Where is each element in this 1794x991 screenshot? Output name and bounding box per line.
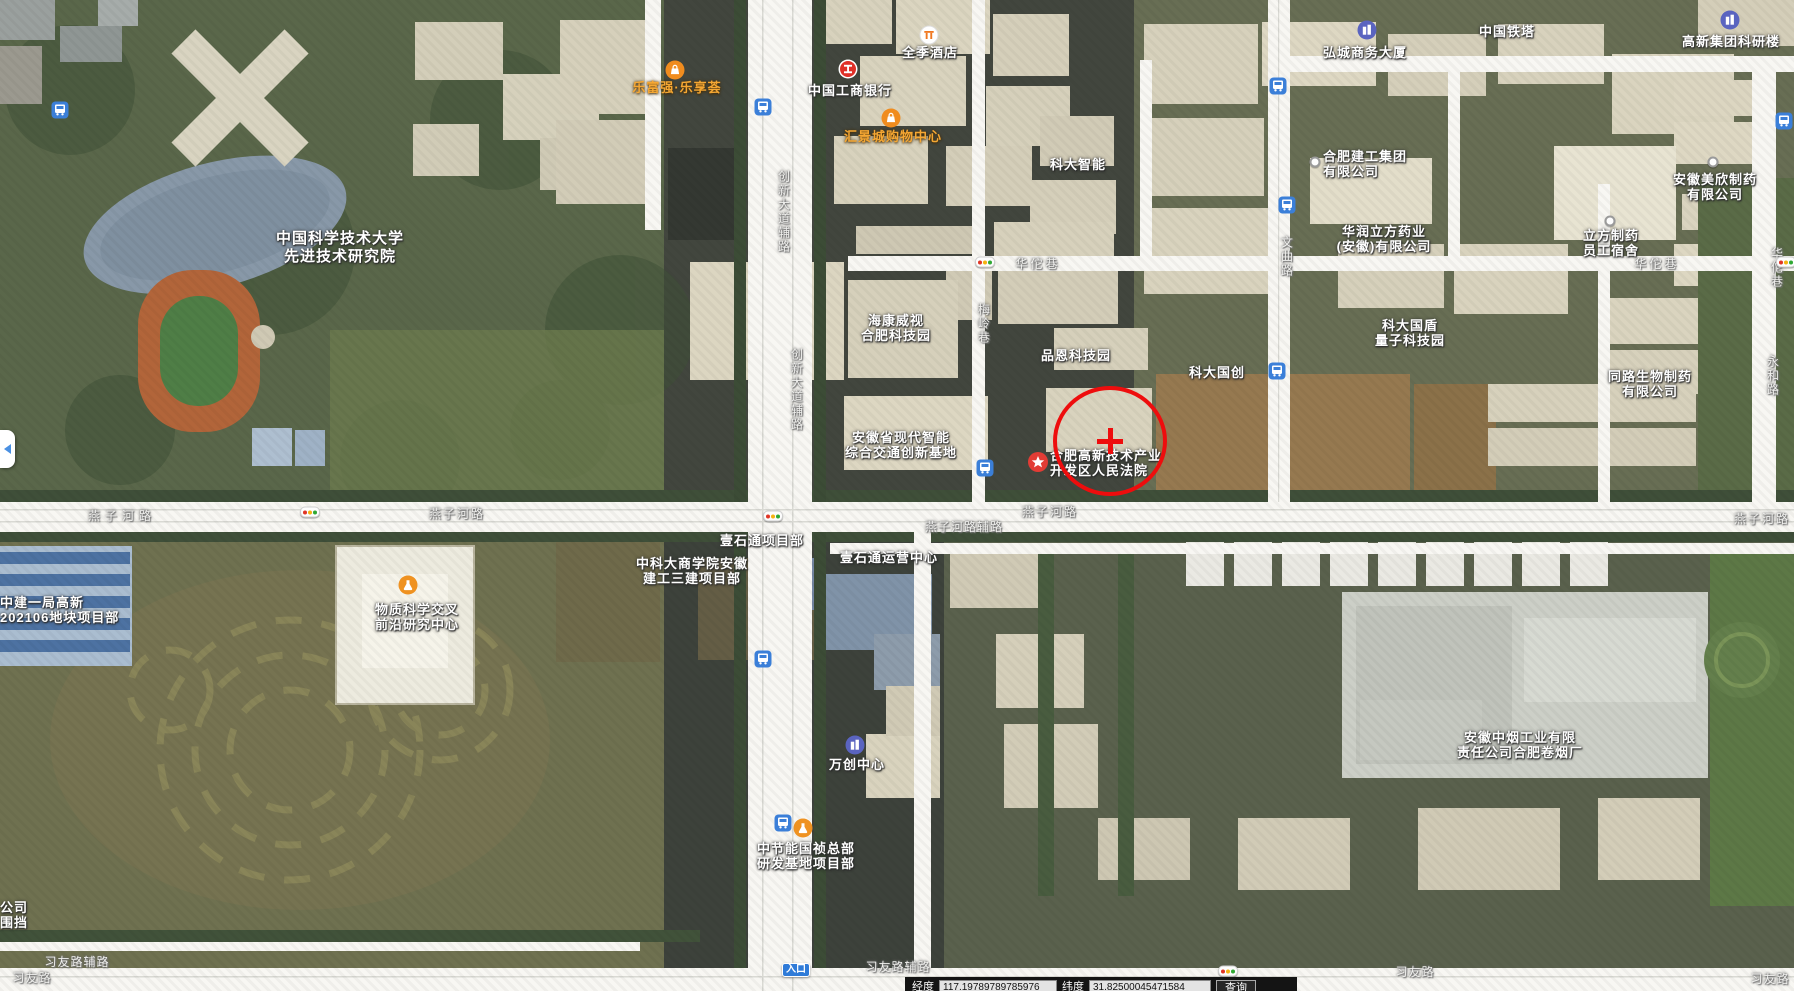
zhongjian-yiju-plot[interactable]: 中建一局高新202106地块项目部 bbox=[0, 595, 119, 625]
icbc-icon[interactable] bbox=[839, 60, 858, 79]
bus-icon[interactable] bbox=[1270, 78, 1287, 95]
longitude-label: 经度 bbox=[912, 981, 934, 991]
zhongkeda-business-school[interactable]: 中科大商学院安徽建工三建项目部 bbox=[636, 556, 748, 586]
zhongjieneng-guozhen[interactable]: 中节能国祯总部研发基地项目部 bbox=[757, 841, 855, 871]
road-label: 梅岭巷 bbox=[977, 303, 990, 345]
anhui-tobacco-factory[interactable]: 安徽中烟工业有限责任公司合肥卷烟厂 bbox=[1457, 730, 1583, 760]
yishitong-project-dept[interactable]: 壹石通项目部 bbox=[720, 533, 804, 548]
panel-collapse-button[interactable] bbox=[0, 430, 15, 468]
bus-icon[interactable] bbox=[1279, 197, 1296, 214]
dot-icon bbox=[1605, 216, 1616, 227]
hefei-jiangong-group[interactable]: 合肥建工集团有限公司 bbox=[1323, 149, 1407, 179]
latitude-input[interactable] bbox=[1089, 980, 1211, 991]
traffic-icon bbox=[300, 507, 320, 518]
wanchuang-center[interactable]: 万创中心 bbox=[829, 757, 885, 772]
road-label: 习友路 bbox=[1395, 966, 1434, 979]
anhui-transport-base[interactable]: 安徽省现代智能综合交通创新基地 bbox=[845, 430, 957, 460]
bus-icon[interactable] bbox=[755, 99, 772, 116]
huijingcheng-mall[interactable]: 汇景城购物中心 bbox=[844, 129, 942, 144]
latitude-label: 纬度 bbox=[1062, 981, 1084, 991]
satellite-imagery bbox=[0, 0, 1794, 991]
dot-icon bbox=[1310, 157, 1321, 168]
road-label: 习友路辅路 bbox=[865, 961, 930, 974]
chevron-left-icon bbox=[4, 444, 11, 454]
star-icon[interactable] bbox=[1028, 452, 1048, 472]
map-viewport[interactable]: 中国科学技术大学先进技术研究院乐富强·乐享荟汇景城购物中心中国工商银行全季酒店弘… bbox=[0, 0, 1794, 991]
keda-guochuang[interactable]: 科大国创 bbox=[1189, 365, 1245, 380]
search-button[interactable]: 查询 bbox=[1216, 980, 1256, 991]
entrance-pill[interactable]: 入口 bbox=[782, 963, 810, 977]
keda-guodun-quantum[interactable]: 科大国盾量子科技园 bbox=[1375, 318, 1445, 348]
longitude-input[interactable] bbox=[939, 980, 1057, 991]
meixin-pharma[interactable]: 安徽美欣制药有限公司 bbox=[1673, 172, 1757, 202]
yishitong-operation-center[interactable]: 壹石通运营中心 bbox=[840, 550, 938, 565]
bus-icon[interactable] bbox=[775, 815, 792, 832]
bus-icon[interactable] bbox=[755, 651, 772, 668]
huarun-lifang-pharma[interactable]: 华润立方药业(安徽)有限公司 bbox=[1337, 224, 1432, 254]
flask-icon[interactable] bbox=[794, 819, 813, 838]
bus-icon[interactable] bbox=[1269, 363, 1286, 380]
building-icon[interactable] bbox=[1358, 21, 1377, 40]
road-label: 文曲路 bbox=[1280, 236, 1293, 278]
tonglu-bio-pharma[interactable]: 同路生物制药有限公司 bbox=[1608, 369, 1692, 399]
road-label: 燕子河路 bbox=[1734, 513, 1790, 526]
traffic-icon bbox=[975, 257, 995, 268]
road-label: 燕子河路 bbox=[88, 510, 156, 523]
bag-icon[interactable] bbox=[666, 61, 685, 80]
road-label: 华佗巷 bbox=[1770, 247, 1783, 289]
dot-icon bbox=[1708, 157, 1719, 168]
bus-icon[interactable] bbox=[977, 460, 994, 477]
traffic-icon bbox=[1218, 966, 1238, 977]
lefuqiang-lexianghui[interactable]: 乐富强·乐享荟 bbox=[632, 80, 721, 95]
road-label: 燕子河路辅路 bbox=[925, 521, 1003, 534]
road-label: 习友路 bbox=[12, 972, 51, 985]
road-label: 习友路 bbox=[1750, 973, 1789, 986]
traffic-icon bbox=[1776, 257, 1794, 268]
target-crosshair-icon bbox=[1108, 428, 1113, 454]
road-label: 燕子河路 bbox=[1022, 506, 1078, 519]
hikvision-hefei-park[interactable]: 海康威视合肥科技园 bbox=[861, 313, 931, 343]
icbc-bank[interactable]: 中国工商银行 bbox=[808, 83, 892, 98]
coordinate-bar: 经度 纬度 查询 bbox=[905, 977, 1297, 991]
traffic-icon bbox=[763, 511, 783, 522]
material-science-center[interactable]: 物质科学交叉前沿研究中心 bbox=[375, 602, 459, 632]
edge-partial-label[interactable]: 公司围挡 bbox=[0, 900, 28, 930]
ustc-advanced-institute[interactable]: 中国科学技术大学先进技术研究院 bbox=[276, 230, 404, 266]
road-label: 永和路 bbox=[1766, 355, 1779, 397]
building-icon[interactable] bbox=[846, 736, 865, 755]
gaoxin-group-research[interactable]: 高新集团科研楼 bbox=[1682, 34, 1780, 49]
road-label: 创新大道辅路 bbox=[777, 170, 790, 254]
quanji-hotel[interactable]: 全季酒店 bbox=[902, 45, 958, 60]
bus-icon[interactable] bbox=[52, 102, 69, 119]
flask-icon[interactable] bbox=[399, 576, 418, 595]
hotel-icon[interactable] bbox=[920, 26, 939, 45]
road-label: 华佗巷 bbox=[1015, 258, 1060, 271]
lifang-dorm[interactable]: 立方制药员工宿舍 bbox=[1583, 228, 1639, 258]
building-icon[interactable] bbox=[1721, 11, 1740, 30]
road-label: 创新大道辅路 bbox=[790, 348, 803, 432]
bag-icon[interactable] bbox=[882, 109, 901, 128]
bus-icon[interactable] bbox=[1776, 113, 1793, 130]
keda-zhineng[interactable]: 科大智能 bbox=[1050, 157, 1106, 172]
road-label: 习友路辅路 bbox=[44, 956, 109, 969]
china-tower[interactable]: 中国铁塔 bbox=[1479, 24, 1535, 39]
pinen-tech-park[interactable]: 品恩科技园 bbox=[1041, 348, 1111, 363]
road-label: 燕子河路 bbox=[429, 508, 485, 521]
road-label: 华佗巷 bbox=[1634, 258, 1679, 271]
hongcheng-business-tower[interactable]: 弘城商务大厦 bbox=[1323, 45, 1407, 60]
